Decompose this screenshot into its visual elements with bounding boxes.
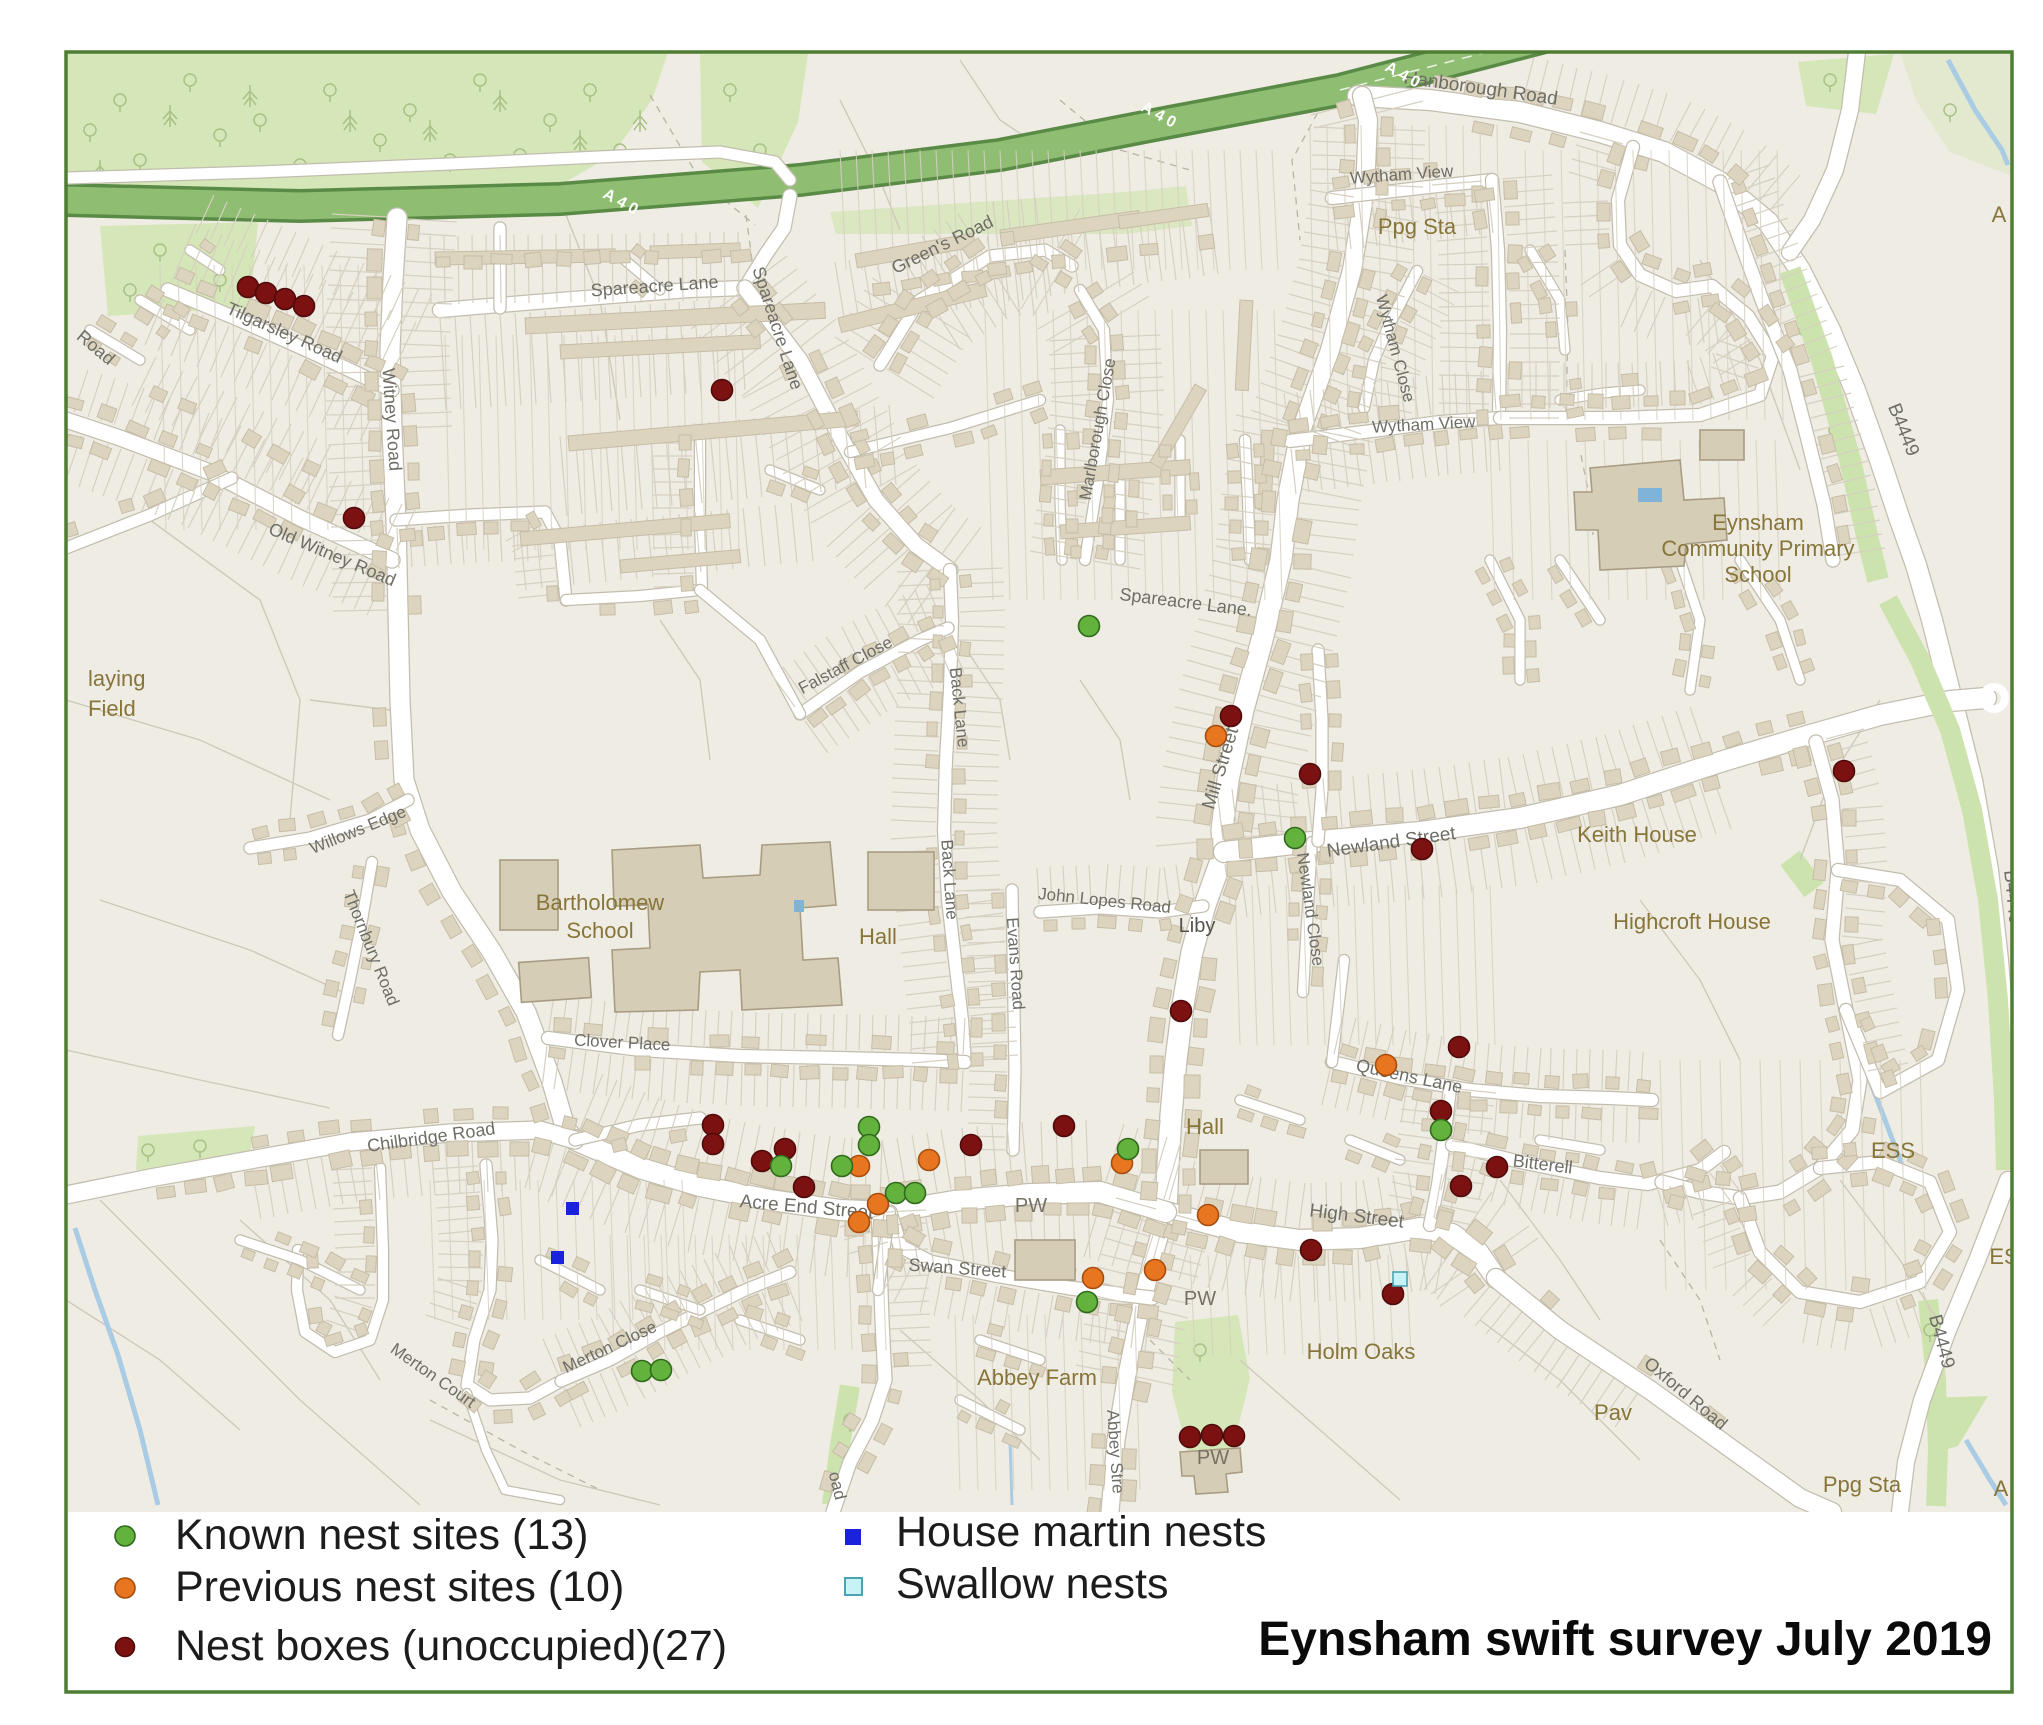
svg-text:Swallow nests: Swallow nests [896,1560,1168,1608]
svg-text:Liby: Liby [1179,915,1216,937]
svg-text:Holm Oaks: Holm Oaks [1307,1339,1416,1364]
svg-text:School: School [566,918,633,943]
svg-text:Nest boxes (unoccupied)(27): Nest boxes (unoccupied)(27) [175,1622,727,1670]
svg-text:Bartholomew: Bartholomew [536,890,665,915]
svg-text:PW: PW [1197,1447,1229,1469]
svg-text:Pav: Pav [1594,1400,1632,1425]
svg-text:Previous nest sites (10): Previous nest sites (10) [175,1563,624,1611]
svg-text:A: A [1994,1476,2009,1501]
svg-text:PW: PW [1015,1195,1047,1217]
svg-text:Hall: Hall [859,924,897,949]
svg-text:Ppg Sta: Ppg Sta [1823,1472,1902,1497]
svg-text:Ppg Sta: Ppg Sta [1378,214,1457,239]
svg-text:Eynsham: Eynsham [1712,510,1804,535]
svg-text:Community Primary: Community Primary [1661,536,1854,561]
svg-text:School: School [1724,562,1791,587]
svg-text:Known nest sites (13): Known nest sites (13) [175,1511,588,1559]
svg-text:A: A [1992,202,2007,227]
svg-text:House martin nests: House martin nests [896,1508,1266,1556]
svg-text:Hall: Hall [1186,1114,1224,1139]
svg-text:ESS: ESS [1871,1138,1915,1163]
svg-text:laying: laying [88,666,145,691]
svg-text:Field: Field [88,696,136,721]
svg-text:Keith House: Keith House [1577,822,1697,847]
svg-text:Highcroft House: Highcroft House [1613,909,1771,934]
svg-text:PW: PW [1184,1288,1216,1310]
svg-text:Abbey Farm: Abbey Farm [977,1365,1097,1390]
svg-text:Eynsham swift survey July 2019: Eynsham swift survey July 2019 [1258,1613,1992,1666]
